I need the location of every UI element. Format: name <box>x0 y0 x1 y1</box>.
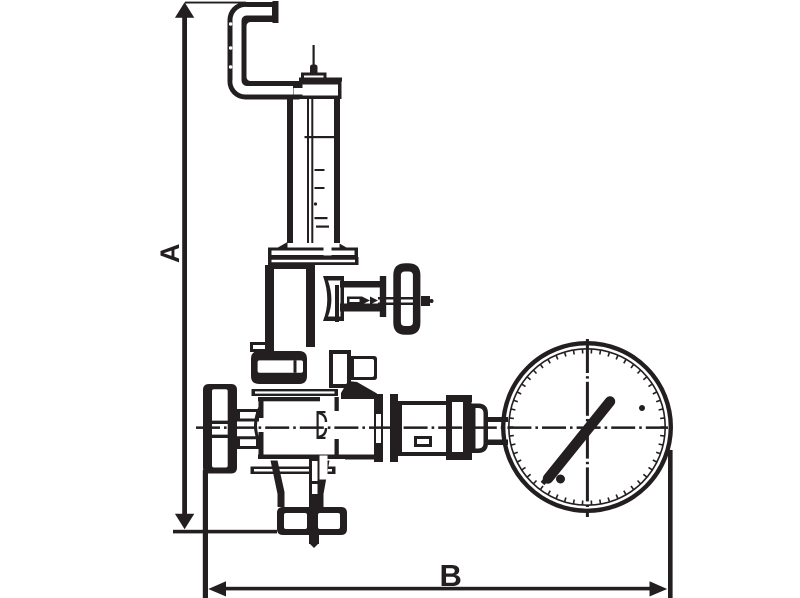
svg-text:A: A <box>155 244 185 264</box>
svg-text:B: B <box>440 558 462 593</box>
